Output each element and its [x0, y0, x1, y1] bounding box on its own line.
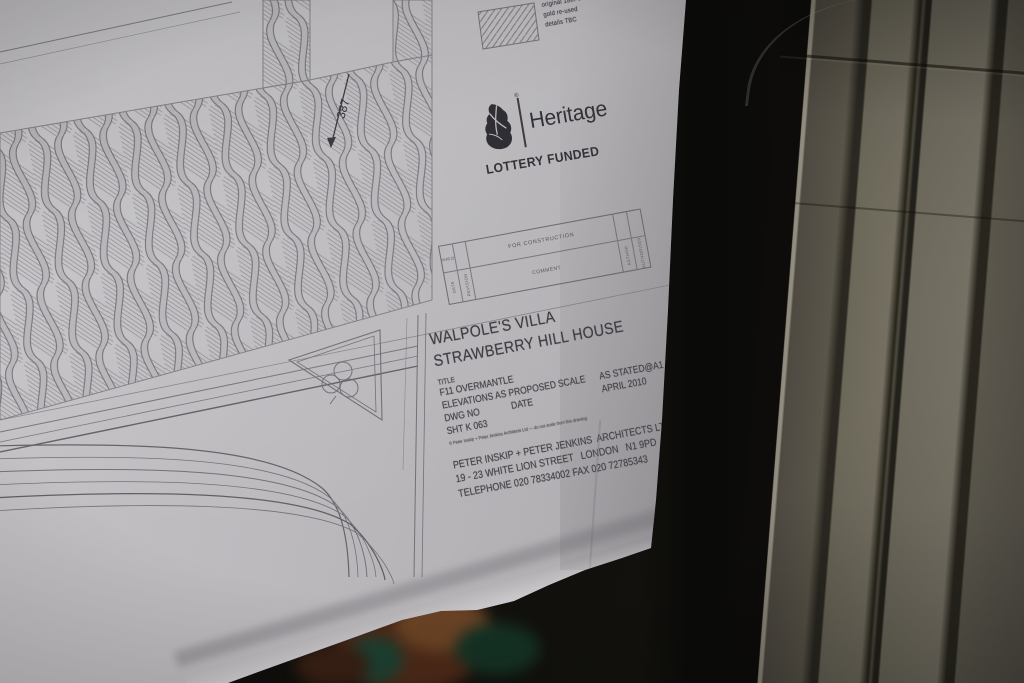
lottery-crossed-fingers-icon — [475, 98, 519, 155]
hatch-swatch — [478, 3, 539, 49]
registered-trademark: ® — [514, 93, 519, 100]
photo-canvas: 387 — [0, 0, 1024, 683]
carpet-pattern-blob — [455, 623, 540, 675]
logo-brand-text: Heritage — [527, 95, 609, 134]
logo-divider — [517, 98, 527, 148]
